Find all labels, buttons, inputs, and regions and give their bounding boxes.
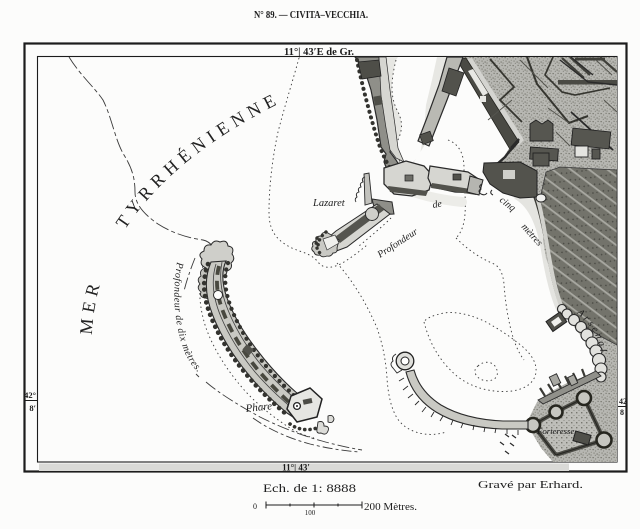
svg-text:Forteresse: Forteresse <box>536 426 574 436</box>
svg-text:11°| 43′E de Gr.: 11°| 43′E de Gr. <box>284 47 354 58</box>
svg-text:42°: 42° <box>24 390 36 400</box>
svg-text:Lazaret: Lazaret <box>312 198 346 209</box>
svg-text:100: 100 <box>305 509 316 517</box>
svg-text:0: 0 <box>253 502 257 511</box>
svg-text:11°| 43′: 11°| 43′ <box>282 463 310 473</box>
svg-text:N° 89. — CIVITA–VECCHIA.: N° 89. — CIVITA–VECCHIA. <box>254 9 368 21</box>
svg-text:Gravé par Erhard.: Gravé par Erhard. <box>478 479 583 491</box>
svg-text:42: 42 <box>619 397 627 406</box>
svg-text:200 Mètres.: 200 Mètres. <box>364 502 417 513</box>
svg-text:8: 8 <box>620 408 624 417</box>
svg-text:8′: 8′ <box>29 403 36 413</box>
svg-text:Ech. de 1: 8888: Ech. de 1: 8888 <box>263 483 356 495</box>
